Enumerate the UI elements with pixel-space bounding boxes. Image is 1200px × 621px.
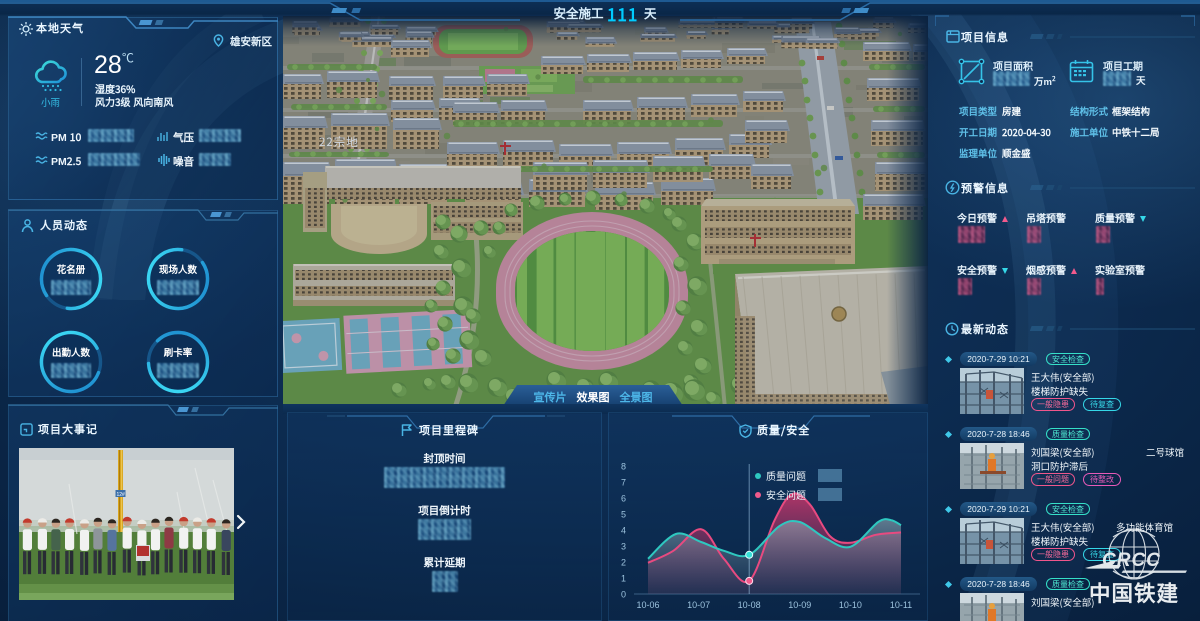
svg-text:10-09: 10-09 [788, 600, 811, 610]
svg-text:4: 4 [621, 526, 626, 536]
svg-text:7: 7 [621, 478, 626, 488]
svg-text:3: 3 [621, 542, 626, 552]
svg-text:6: 6 [621, 494, 626, 504]
svg-text:10-06: 10-06 [636, 600, 659, 610]
svg-text:5: 5 [621, 510, 626, 520]
svg-text:12#: 12# [117, 492, 126, 498]
svg-text:2: 2 [621, 558, 626, 568]
svg-text:10-10: 10-10 [839, 600, 862, 610]
svg-text:CRCC: CRCC [1102, 550, 1161, 571]
svg-text:10-07: 10-07 [687, 600, 710, 610]
svg-text:质量问题: 质量问题 [766, 468, 806, 483]
svg-text:10-11: 10-11 [890, 600, 912, 610]
svg-text:中国铁建: 中国铁建 [1089, 577, 1179, 608]
svg-text:0: 0 [621, 590, 626, 600]
svg-text:安全问题: 安全问题 [766, 487, 806, 502]
svg-text:8: 8 [621, 462, 626, 472]
svg-text:10-08: 10-08 [738, 600, 761, 610]
svg-text:1: 1 [621, 574, 626, 584]
